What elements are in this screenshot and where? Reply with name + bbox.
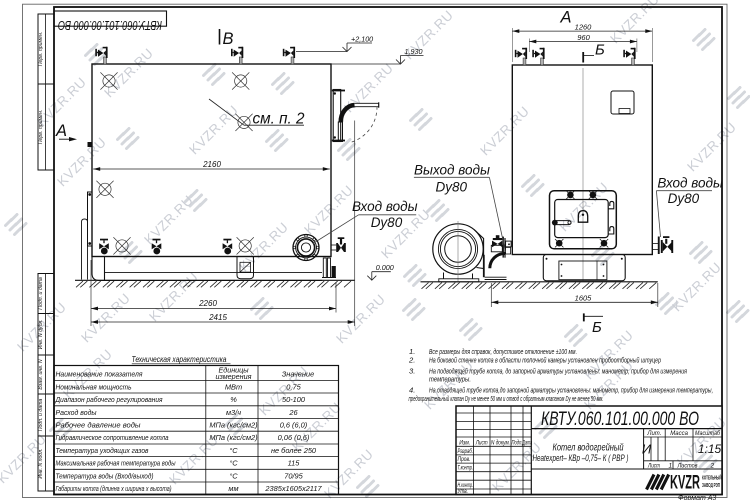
svg-text:МВт: МВт (225, 382, 242, 391)
svg-text:0.000: 0.000 (376, 263, 394, 272)
svg-text:В: В (223, 30, 234, 48)
svg-text:ЗАВОД РЭП: ЗАВОД РЭП (702, 483, 720, 489)
svg-text:2385х1605х2117: 2385х1605х2117 (264, 484, 322, 493)
svg-text:КОТЕЛЬНЫЙ: КОТЕЛЬНЫЙ (702, 474, 722, 482)
svg-text:Лист: Лист (475, 440, 488, 446)
svg-text:N докум.: N докум. (491, 440, 510, 446)
svg-text:Т.контр.: Т.контр. (458, 466, 474, 472)
svg-text:1605: 1605 (575, 293, 593, 302)
svg-text:2160: 2160 (202, 160, 221, 169)
svg-text:Вход воды: Вход воды (352, 199, 418, 214)
svg-text:Выход воды: Выход воды (414, 162, 490, 177)
svg-text:Перв. примен.: Перв. примен. (38, 32, 44, 66)
svg-text:Максимальная рабочая температу: Максимальная рабочая температура воды (56, 459, 176, 468)
svg-text:мм: мм (228, 484, 238, 493)
svg-text:см. п. 2: см. п. 2 (253, 110, 305, 127)
svg-text:115: 115 (288, 459, 301, 468)
svg-text:Температура уходящих газов: Температура уходящих газов (56, 446, 149, 455)
svg-text:Подп.: Подп. (512, 440, 523, 446)
svg-text:Лит.: Лит. (646, 431, 661, 437)
svg-text:Изм.: Изм. (459, 440, 470, 446)
svg-text:Лист: Лист (647, 462, 660, 469)
svg-text:м3/ч: м3/ч (226, 408, 241, 417)
svg-text:Масса: Масса (670, 431, 688, 437)
svg-text:+2,100: +2,100 (351, 35, 373, 44)
svg-text:Разраб.: Разраб. (458, 449, 474, 455)
svg-text:Подп. и дата: Подп. и дата (38, 399, 44, 432)
svg-text:°С: °С (229, 446, 238, 455)
svg-text:Котел водогрейный: Котел водогрейный (553, 442, 624, 454)
svg-text:А: А (55, 122, 67, 140)
svg-text:измерения: измерения (216, 372, 252, 381)
svg-text:И: И (642, 442, 652, 457)
svg-text:Взам. инв. N: Взам. инв. N (38, 359, 44, 389)
svg-text:KVZR: KVZR (670, 473, 700, 494)
svg-text:Dy80: Dy80 (371, 215, 403, 230)
svg-text:1260: 1260 (575, 23, 593, 32)
svg-text:70/95: 70/95 (284, 471, 303, 480)
svg-text:Гидравлическое сопротивление к: Гидравлическое сопротивление котла (56, 433, 169, 442)
svg-text:Температура воды (Вход/выход): Температура воды (Вход/выход) (56, 471, 154, 480)
svg-text:Dy80: Dy80 (436, 179, 468, 194)
svg-text:Подп. и дата: Подп. и дата (38, 277, 44, 310)
svg-text:Инв. N подл.: Инв. N подл. (38, 448, 44, 478)
svg-text:Б: Б (595, 42, 605, 59)
svg-text:Техническая характеристика: Техническая характеристика (132, 355, 227, 364)
svg-text:Утв.: Утв. (457, 489, 468, 495)
svg-text:2415: 2415 (208, 313, 227, 322)
svg-text:1: 1 (669, 462, 673, 469)
svg-text:960: 960 (577, 33, 590, 42)
svg-text:Dy80: Dy80 (668, 191, 700, 206)
svg-text:3.: 3. (409, 367, 415, 376)
svg-text:Н.контр.: Н.контр. (458, 483, 474, 489)
svg-text:Пров.: Пров. (458, 457, 471, 463)
svg-text:2260: 2260 (198, 299, 217, 308)
svg-text:Вход воды: Вход воды (657, 175, 723, 190)
svg-text:°С: °С (229, 471, 238, 480)
svg-text:%: % (230, 395, 237, 404)
svg-text:°С: °С (229, 459, 238, 468)
svg-text:Heatexpert– КВр –0,75– К ( РВР: Heatexpert– КВр –0,75– К ( РВР ) (533, 453, 629, 463)
svg-text:Габариты котла (длинна х ширин: Габариты котла (длинна х ширина х высота… (56, 484, 172, 493)
svg-text:26: 26 (288, 408, 298, 417)
svg-text:2.: 2. (408, 356, 415, 365)
svg-text:Рабочее давление воды: Рабочее давление воды (56, 420, 142, 429)
svg-text:КВТУ.060.101.00.000 ВО: КВТУ.060.101.00.000 ВО (58, 18, 162, 32)
svg-text:Формат А3: Формат А3 (678, 495, 716, 500)
svg-text:Расход воды: Расход воды (56, 408, 98, 417)
svg-text:Б: Б (592, 319, 602, 336)
svg-text:А: А (560, 9, 572, 27)
svg-text:1.: 1. (409, 347, 415, 356)
svg-text:Все размеры для справок, допус: Все размеры для справок, допустимое откл… (429, 347, 577, 356)
svg-text:КВТУ.060.101.00.000 ВО: КВТУ.060.101.00.000 ВО (541, 409, 699, 430)
